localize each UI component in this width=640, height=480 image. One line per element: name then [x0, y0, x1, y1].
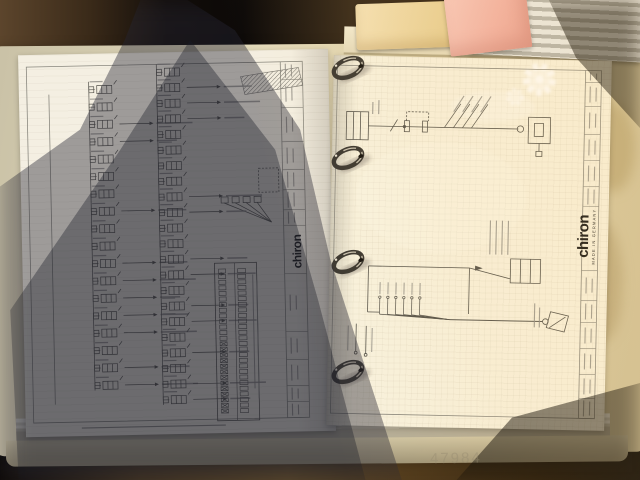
left-page: chiron — [18, 49, 336, 437]
chiron-logo: chiron — [289, 224, 306, 278]
relay-symbol-column — [89, 79, 198, 391]
made-in-germany-label: MADE IN GERMANY — [592, 209, 597, 265]
photo-scene: chiron — [0, 0, 640, 480]
chiron-logo: chiron MADE IN GERMANY — [573, 204, 598, 268]
sticky-note-pink — [444, 0, 533, 57]
chiron-logo-text: chiron — [576, 215, 592, 258]
cable-bundle — [348, 281, 540, 355]
relay-symbol-column — [156, 61, 266, 405]
gear-watermark-icon — [355, 63, 553, 255]
right-page: chiron MADE IN GERMANY — [326, 55, 612, 431]
binder-cover-bottom-edge — [6, 435, 628, 466]
terminal-strip — [214, 262, 259, 420]
photo-watermark: 47984 — [430, 450, 482, 468]
generated-symbols — [88, 60, 309, 423]
right-schematic-svg — [326, 55, 612, 431]
shaded-block-symbol — [240, 67, 303, 94]
lower-circuit — [354, 256, 569, 361]
